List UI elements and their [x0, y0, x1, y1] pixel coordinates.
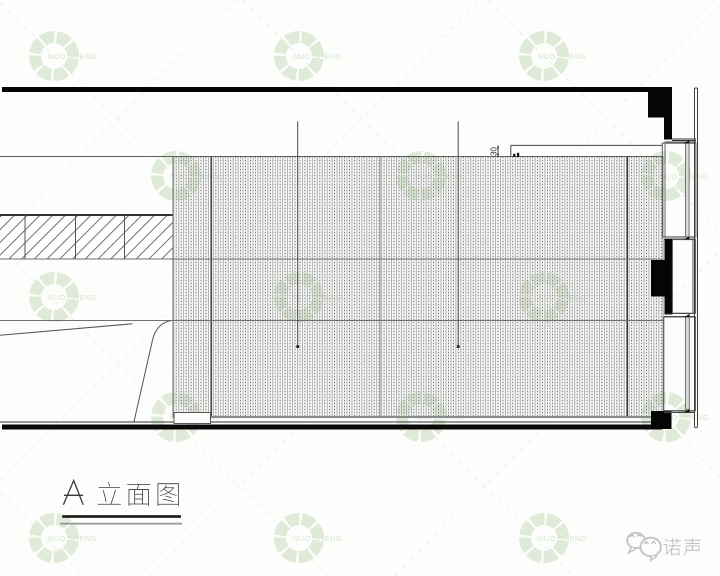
svg-text:NUO SHENG: NUO SHENG	[48, 534, 97, 543]
svg-text:NUO SHENG: NUO SHENG	[48, 52, 97, 61]
svg-text:NUO SHENG: NUO SHENG	[538, 534, 587, 543]
svg-text:NUO SHENG: NUO SHENG	[538, 52, 587, 61]
svg-text:NUO SHENG: NUO SHENG	[293, 52, 342, 61]
svg-text:NUO SHENG: NUO SHENG	[293, 534, 342, 543]
svg-text:NUO SHENG: NUO SHENG	[48, 293, 97, 302]
svg-text:NUO SHENG: NUO SHENG	[660, 172, 709, 181]
svg-text:30: 30	[490, 147, 499, 156]
